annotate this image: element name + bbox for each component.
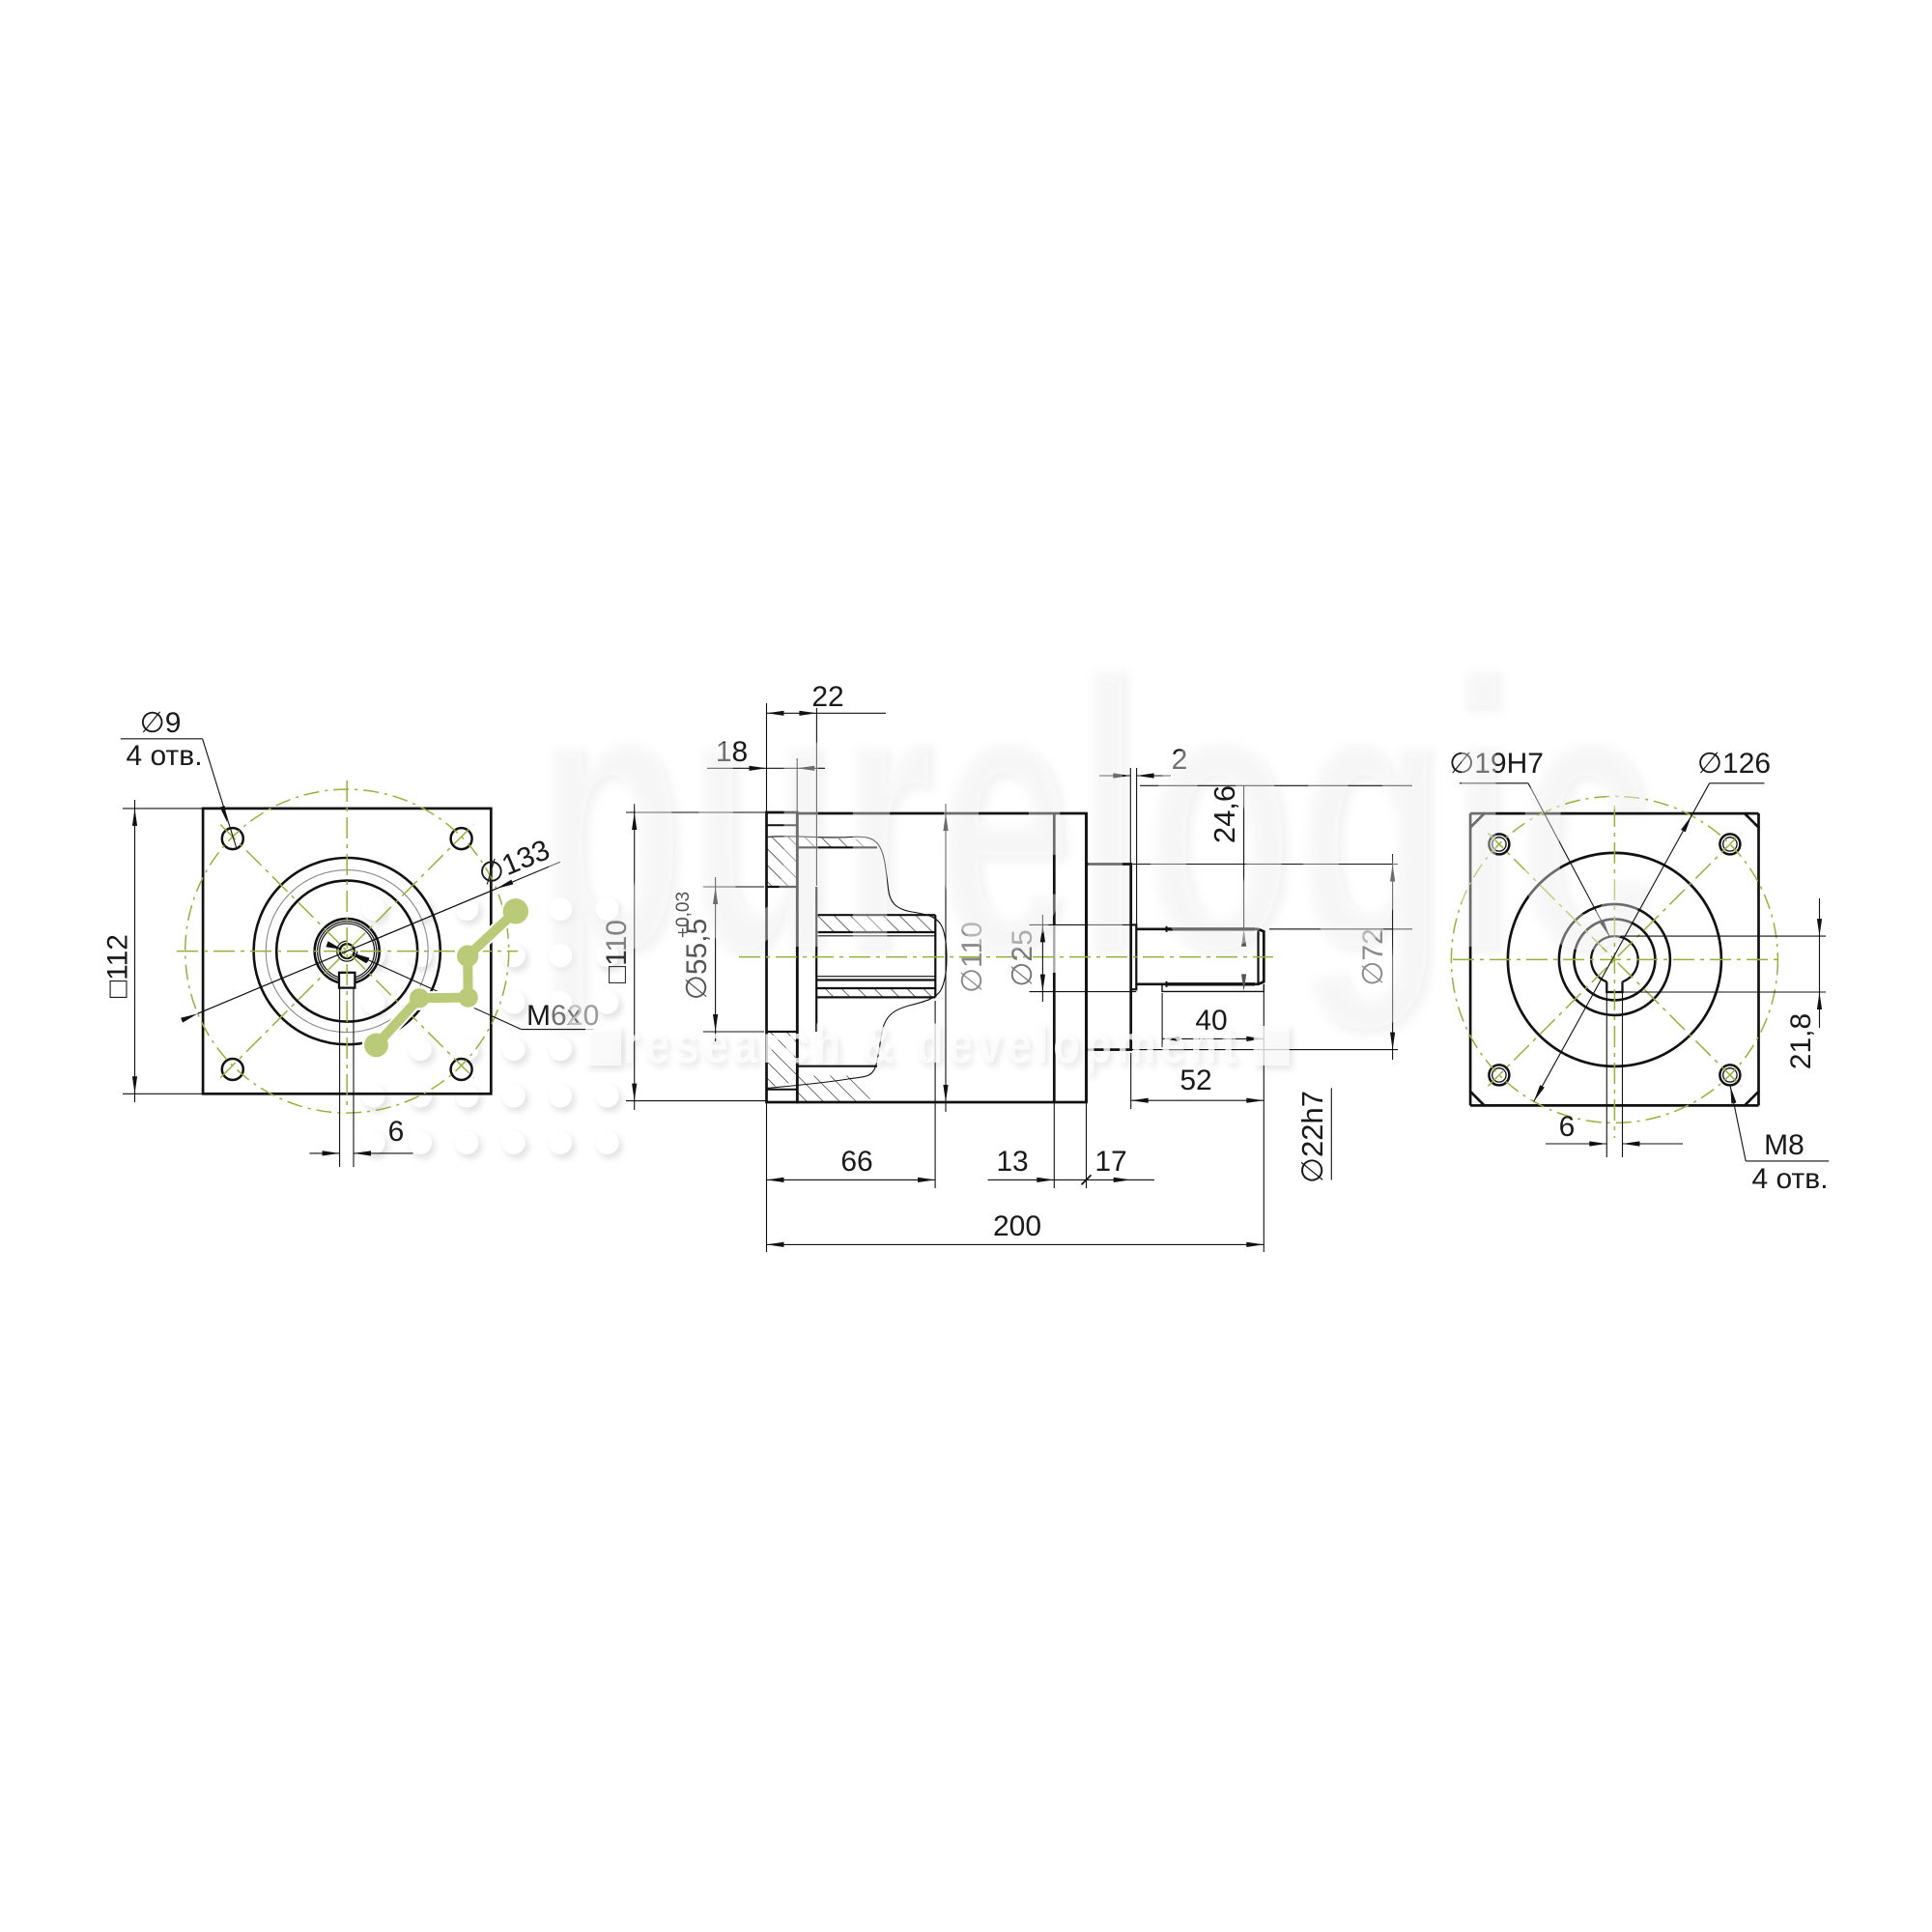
svg-text:4 отв.: 4 отв. — [1751, 1163, 1828, 1195]
svg-text:17: 17 — [1094, 1146, 1126, 1178]
svg-text:∅126: ∅126 — [1697, 748, 1771, 780]
svg-text:□112: □112 — [102, 934, 134, 998]
svg-text:∅22h7: ∅22h7 — [1295, 1091, 1329, 1183]
svg-text:6: 6 — [388, 1116, 405, 1148]
svg-text:research & development: research & development — [623, 1013, 1241, 1074]
svg-text:13: 13 — [996, 1146, 1028, 1178]
svg-text:200: 200 — [993, 1210, 1041, 1242]
svg-text:66: 66 — [840, 1146, 872, 1178]
svg-text:purelogic: purelogic — [531, 597, 1652, 1032]
svg-text:M8: M8 — [1764, 1129, 1804, 1161]
svg-text:∅9: ∅9 — [140, 707, 182, 739]
svg-text:6: 6 — [1559, 1111, 1576, 1143]
svg-text:4 отв.: 4 отв. — [126, 740, 202, 772]
svg-text:21,8: 21,8 — [1785, 1013, 1817, 1069]
